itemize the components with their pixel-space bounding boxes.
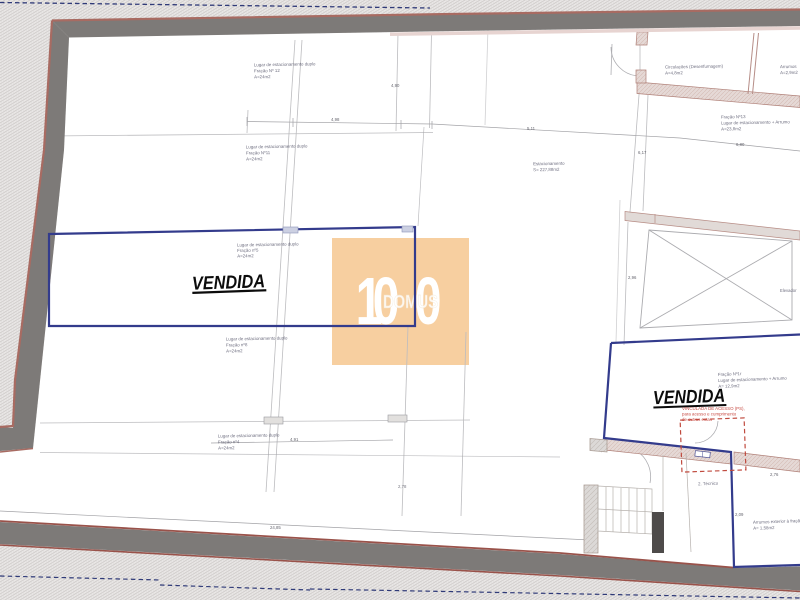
svg-text:Fração nº5: Fração nº5 xyxy=(237,248,259,253)
svg-text:Elevador: Elevador xyxy=(780,288,797,293)
svg-text:Estacionamento: Estacionamento xyxy=(533,161,565,167)
svg-text:2,96: 2,96 xyxy=(628,275,637,280)
svg-text:4,90: 4,90 xyxy=(391,83,400,88)
svg-text:4,91: 4,91 xyxy=(290,437,299,442)
svg-text:Fração Nº11: Fração Nº11 xyxy=(246,150,271,155)
svg-text:Circulações (Desenfumagem): Circulações (Desenfumagem) xyxy=(665,64,724,70)
svg-text:A=24m2: A=24m2 xyxy=(218,445,235,450)
svg-text:VINCULADA DE ACESSO (PS),: VINCULADA DE ACESSO (PS), xyxy=(682,406,745,411)
svg-text:Fração Nº13: Fração Nº13 xyxy=(721,114,746,119)
svg-text:2,09: 2,09 xyxy=(735,512,744,517)
svg-text:A=24m2: A=24m2 xyxy=(237,253,254,258)
svg-text:A=24m2: A=24m2 xyxy=(226,348,243,353)
svg-text:2,76: 2,76 xyxy=(770,472,779,477)
svg-text:de outras cotas: de outras cotas xyxy=(682,417,713,422)
svg-text:Fração nº4: Fração nº4 xyxy=(218,439,240,444)
svg-text:24,85: 24,85 xyxy=(270,525,281,530)
svg-text:2. Técnico: 2. Técnico xyxy=(698,481,719,487)
svg-text:Fração Nº 12: Fração Nº 12 xyxy=(254,68,280,73)
svg-text:DOMUS: DOMUS xyxy=(383,292,438,312)
svg-text:Arrumos: Arrumos xyxy=(780,64,797,69)
svg-text:A= 1,58m2: A= 1,58m2 xyxy=(753,525,775,531)
svg-text:A=24m2: A=24m2 xyxy=(246,156,263,161)
svg-text:A=2,9m2: A=2,9m2 xyxy=(780,70,798,75)
svg-text:A= 12,9m2: A= 12,9m2 xyxy=(718,383,740,389)
svg-text:4,98: 4,98 xyxy=(331,117,340,122)
svg-text:2,78: 2,78 xyxy=(398,484,407,489)
svg-text:6,80: 6,80 xyxy=(736,142,745,147)
svg-text:Fração Nº1r: Fração Nº1r xyxy=(718,371,742,377)
svg-text:A=24m2: A=24m2 xyxy=(254,74,271,79)
svg-text:para acesso e cumprimento: para acesso e cumprimento xyxy=(682,412,737,417)
svg-text:6,17: 6,17 xyxy=(638,150,647,155)
svg-text:A=4,8m2: A=4,8m2 xyxy=(665,70,683,75)
svg-text:A=23,8m2: A=23,8m2 xyxy=(721,126,742,131)
svg-text:5,11: 5,11 xyxy=(527,126,536,131)
svg-text:S= 227,88m2: S= 227,88m2 xyxy=(533,167,560,172)
svg-text:Fração nº8: Fração nº8 xyxy=(226,342,248,347)
